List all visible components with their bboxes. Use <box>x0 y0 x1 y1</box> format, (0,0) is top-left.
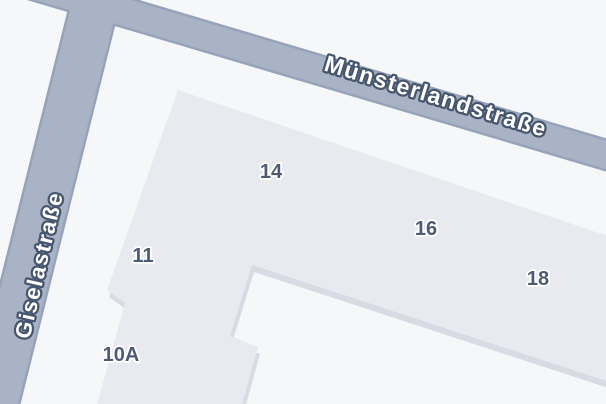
map-canvas[interactable]: 14 16 18 11 10A Münsterlandstraße Gisela… <box>0 0 606 404</box>
house-number-10A[interactable]: 10A <box>103 344 140 366</box>
house-number-16[interactable]: 16 <box>415 218 437 240</box>
house-number-11[interactable]: 11 <box>132 245 153 267</box>
map-viewport[interactable]: 14 16 18 11 10A Münsterlandstraße Gisela… <box>0 0 606 404</box>
house-number-18[interactable]: 18 <box>527 268 549 290</box>
house-number-14[interactable]: 14 <box>260 161 283 183</box>
